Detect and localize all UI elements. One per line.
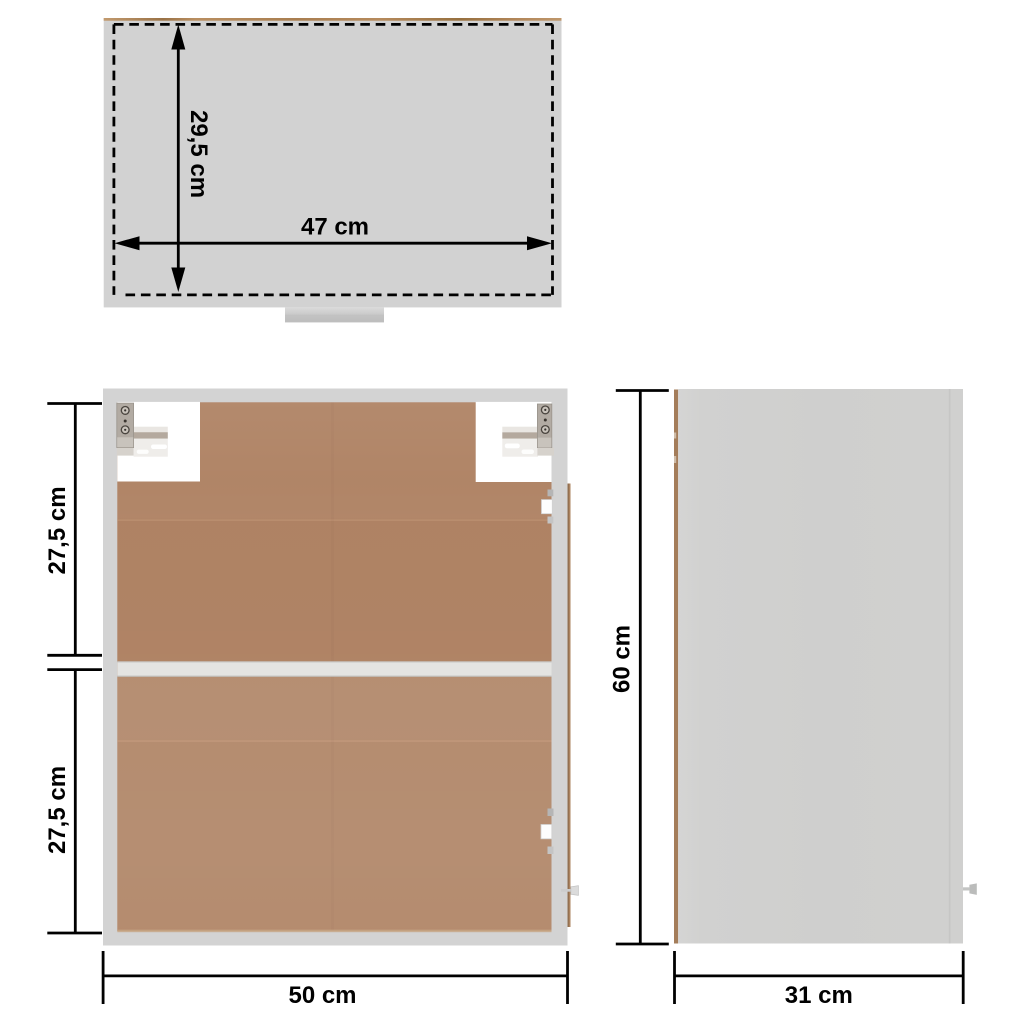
svg-text:60 cm: 60 cm <box>608 625 635 693</box>
svg-text:31 cm: 31 cm <box>785 982 853 1009</box>
svg-text:50 cm: 50 cm <box>288 982 356 1009</box>
svg-text:29,5 cm: 29,5 cm <box>185 110 212 198</box>
svg-text:27,5 cm: 27,5 cm <box>44 486 71 574</box>
svg-text:47 cm: 47 cm <box>301 213 369 240</box>
svg-text:27,5 cm: 27,5 cm <box>44 766 71 854</box>
